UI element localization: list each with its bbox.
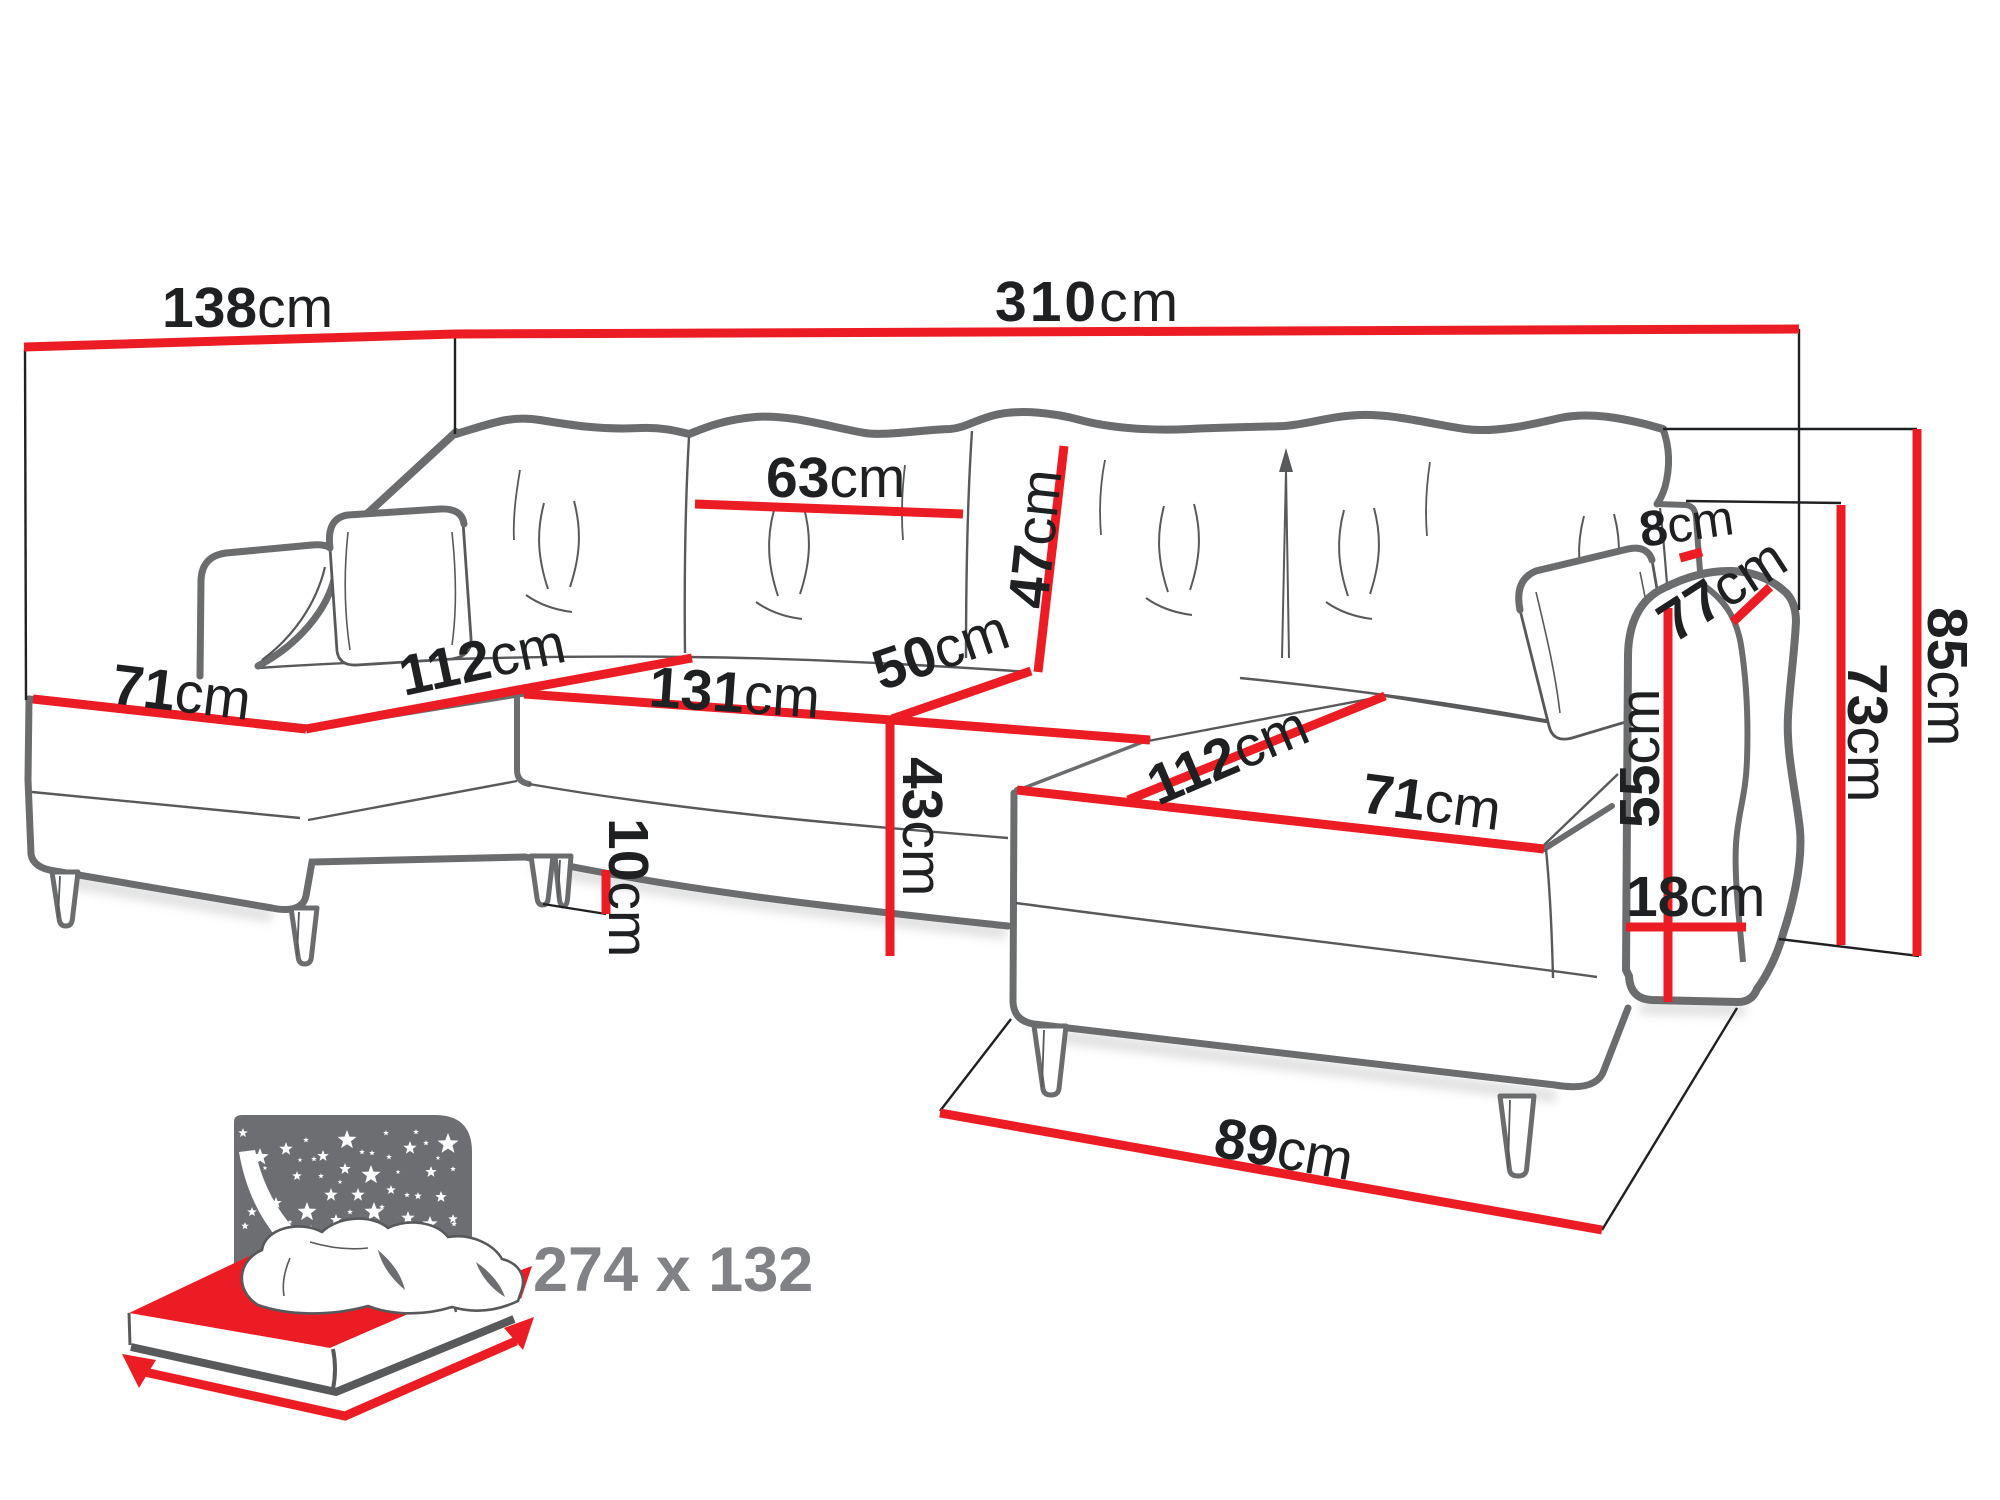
- svg-text:274 x 132: 274 x 132: [533, 1235, 813, 1305]
- svg-text:73cm: 73cm: [1835, 663, 1899, 802]
- svg-text:85cm: 85cm: [1915, 607, 1979, 746]
- svg-text:63cm: 63cm: [766, 446, 905, 510]
- svg-text:55cm: 55cm: [1608, 689, 1672, 828]
- svg-text:10cm: 10cm: [596, 818, 660, 957]
- svg-text:43cm: 43cm: [890, 757, 954, 896]
- svg-text:18cm: 18cm: [1626, 865, 1765, 929]
- svg-text:138cm: 138cm: [162, 276, 333, 340]
- svg-text:131cm: 131cm: [647, 655, 822, 731]
- svg-text:310cm: 310cm: [995, 270, 1181, 334]
